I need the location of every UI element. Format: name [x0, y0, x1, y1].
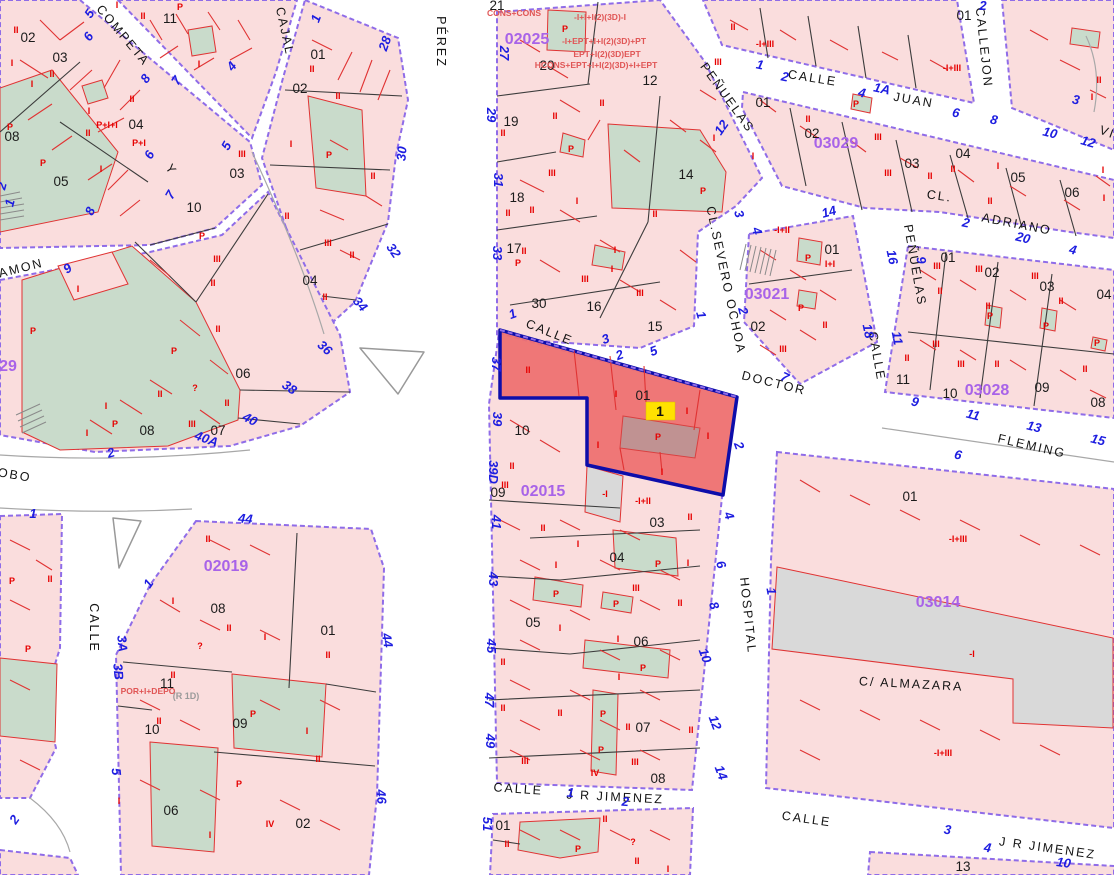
floor-count-label: II	[688, 725, 693, 735]
street-name-label: CALLE	[781, 809, 832, 830]
floor-count-label: II	[13, 25, 18, 35]
floor-count-label: III	[548, 168, 556, 178]
floor-count-label: I	[116, 0, 119, 10]
floor-count-label: III	[1031, 271, 1039, 281]
parcel-marker-label: 1	[656, 403, 664, 419]
house-number-label: 3B	[110, 663, 126, 681]
floor-count-label: I	[752, 151, 755, 161]
floor-count-label: II	[210, 278, 215, 288]
parcel-number-label: 06	[633, 634, 648, 649]
floor-count-label: P	[805, 253, 811, 263]
house-number-label: 30	[393, 145, 409, 161]
floor-count-label: ?	[630, 837, 636, 847]
floor-count-label: I	[77, 284, 80, 294]
floor-count-label: II	[1096, 75, 1101, 85]
floor-count-label: -I+III	[934, 748, 952, 758]
floor-count-label: III	[501, 480, 509, 490]
floor-count-label: II	[140, 11, 145, 21]
parcel-number-label: 06	[1064, 185, 1079, 200]
house-number-label: 33	[490, 246, 505, 261]
floor-count-label: III	[884, 168, 892, 178]
house-number-label: 1	[566, 785, 575, 801]
parcel-number-label: 16	[586, 299, 601, 314]
floor-count-label: P	[553, 589, 559, 599]
floor-count-label: III	[581, 274, 589, 284]
floor-count-label: III	[521, 756, 529, 766]
floor-count-label: P	[640, 663, 646, 673]
parcel-number-label: 12	[642, 73, 657, 88]
construction-detail-label: HCONS+EPT+I+I(2)(3D)+I+EPT	[535, 60, 658, 70]
floor-count-label: -I+II	[635, 496, 651, 506]
block-code-label: 02019	[204, 558, 249, 575]
parcel-number-label: 09	[232, 716, 247, 731]
floor-count-label: III	[975, 264, 983, 274]
floor-count-label: III	[213, 254, 221, 264]
floor-count-label: II	[309, 64, 314, 74]
floor-count-label: I	[576, 196, 579, 206]
floor-count-label: III	[714, 57, 722, 67]
floor-count-label: II	[687, 512, 692, 522]
block-code-label: 02015	[521, 483, 566, 500]
parcel-number-label: 02	[292, 81, 307, 96]
floor-count-label: I	[559, 623, 562, 633]
floor-count-label: II	[602, 814, 607, 824]
parcel-number-label: 01	[320, 623, 335, 638]
floor-count-label: P	[575, 844, 581, 854]
house-number-label: 10	[1055, 854, 1072, 871]
city-block-top-strip[interactable]	[703, 0, 974, 103]
floor-count-label: II	[370, 171, 375, 181]
parcel-number-label: 03	[649, 515, 664, 530]
floor-count-label: II	[224, 398, 229, 408]
floor-count-label: II	[625, 722, 630, 732]
house-number-label: 49	[483, 733, 498, 749]
floor-count-label: P	[798, 303, 804, 313]
house-number-label: 3	[731, 208, 748, 220]
floor-count-label: II	[677, 598, 682, 608]
house-number-label: 10	[1041, 124, 1059, 142]
parcel-number-label: 09	[1034, 380, 1049, 395]
floor-count-label: II	[284, 211, 289, 221]
house-number-label: 44	[237, 510, 254, 526]
floor-count-label: I	[577, 539, 580, 549]
construction-detail-label: CONS+CONS	[487, 8, 541, 18]
parcel-number-label: 01	[902, 489, 917, 504]
floor-count-label: I	[100, 164, 103, 174]
floor-count-label: I	[198, 59, 201, 69]
floor-count-label: P	[700, 186, 706, 196]
floor-count-label: II	[322, 292, 327, 302]
floor-count-label: II	[529, 205, 534, 215]
parcel-number-label: 05	[1010, 170, 1025, 185]
floor-count-label: II	[521, 246, 526, 256]
floor-count-label: I	[1103, 193, 1106, 203]
block-code-label: 03021	[745, 286, 790, 303]
floor-count-label: II	[325, 650, 330, 660]
house-number-label: 5	[647, 342, 660, 359]
floor-count-label: II	[315, 754, 320, 764]
floor-count-label: P	[112, 419, 118, 429]
parcel-number-label: 06	[163, 803, 178, 818]
floor-count-label: III	[779, 344, 787, 354]
parcel-number-label: 15	[647, 319, 662, 334]
parcel-number-label: 01	[824, 242, 839, 257]
floor-count-label: III	[631, 757, 639, 767]
floor-count-label: P	[9, 576, 15, 586]
floor-count-label: II	[509, 461, 514, 471]
street-name-label: CALLE	[493, 780, 543, 797]
floor-count-label: II	[500, 128, 505, 138]
floor-count-label: P	[199, 231, 205, 241]
parcel-number-label: 06	[235, 366, 250, 381]
parcel-number-label: 03	[1039, 279, 1054, 294]
floor-count-label: P+I	[132, 138, 146, 148]
floor-count-label: II	[215, 324, 220, 334]
floor-count-label: II	[730, 22, 735, 32]
house-number-label: 2	[620, 794, 630, 810]
street-name-label: CL.SEVERO OCHOA	[703, 205, 748, 355]
floor-count-label: I	[290, 139, 293, 149]
parcel-number-label: 18	[509, 190, 524, 205]
floor-count-label: II	[652, 209, 657, 219]
parcel-number-label: 01	[495, 818, 510, 833]
floor-count-label: -I+III	[943, 63, 961, 73]
floor-count-label: P	[326, 150, 332, 160]
floor-count-label: II	[634, 856, 639, 866]
parcel-number-label: 10	[514, 423, 529, 438]
parcel-number-label: 03	[229, 166, 244, 181]
block-code-label: 03014	[916, 594, 961, 611]
house-number-label: 4	[721, 509, 738, 523]
house-number-label: 27	[497, 45, 512, 61]
floor-count-label: I	[31, 79, 34, 89]
cadastral-map-viewport: 1 PÉREZCOMPETACAJALYAMONOBOCALLECALLEDOC…	[0, 0, 1114, 875]
house-number-label: 29	[484, 107, 499, 123]
floor-count-label: II	[540, 523, 545, 533]
parcel-number-label: 02	[750, 319, 765, 334]
floor-count-label: III	[932, 339, 940, 349]
floor-count-label: II	[170, 670, 175, 680]
parcel-number-label: 17	[506, 241, 521, 256]
house-number-label: 4	[1067, 241, 1079, 258]
block-code-label: 03028	[965, 382, 1010, 399]
floor-count-label: I	[105, 401, 108, 411]
parcel-number-label: 02	[20, 30, 35, 45]
construction-detail-label: -I+EPT+I+I(2)(3D)+PT	[562, 36, 647, 46]
floor-count-label: II	[805, 114, 810, 124]
parcel-number-label: 03	[52, 50, 67, 65]
floor-count-label: I	[306, 726, 309, 736]
floor-count-label: II	[226, 623, 231, 633]
house-number-label: 37	[489, 357, 504, 372]
house-number-label: 39D	[486, 460, 501, 484]
parcel-number-label: 11	[163, 11, 177, 26]
house-number-label: 3A	[114, 635, 130, 653]
house-number-label: 1A	[872, 80, 891, 98]
floor-count-label: II	[927, 171, 932, 181]
floor-count-label: I	[209, 830, 212, 840]
floor-count-label: I	[118, 796, 121, 806]
floor-count-label: I	[687, 558, 690, 568]
house-number-label: 14	[712, 763, 731, 782]
parcel-number-label: 01	[635, 388, 650, 403]
house-number-label: 2	[960, 214, 972, 231]
house-number-label: 16	[884, 248, 902, 266]
floor-count-label: I	[88, 106, 91, 116]
floor-count-label: ?	[192, 383, 198, 393]
house-number-label: 20	[1013, 228, 1032, 246]
street-name-label: OBO	[0, 465, 33, 485]
floor-count-label: -I	[602, 489, 608, 499]
construction-detail-label: -I+I+I(2)(3D)-I	[574, 12, 626, 22]
house-number-label: 1	[29, 506, 36, 521]
floor-count-label: -I	[969, 649, 975, 659]
floor-count-label: III	[238, 149, 246, 159]
floor-count-label: P	[853, 99, 859, 109]
floor-count-label: II	[335, 91, 340, 101]
house-number-label: 46	[373, 788, 389, 805]
parcel-number-label: 19	[503, 114, 518, 129]
parcel-number-label: 02	[295, 816, 310, 831]
floor-count-label: I	[614, 245, 617, 255]
floor-count-label: II	[500, 657, 505, 667]
floor-count-label: P	[7, 122, 13, 132]
street-name-label: FLEMING	[996, 431, 1067, 460]
street-name-label: HOSPITAL	[737, 577, 759, 655]
traffic-island	[360, 348, 424, 394]
street-name-label: J R JIMENEZ	[998, 834, 1097, 861]
floor-count-label: II	[157, 389, 162, 399]
house-number-label: 45	[484, 638, 499, 654]
house-number-label: 44	[379, 631, 397, 650]
floor-count-label: II	[1082, 364, 1087, 374]
floor-count-label: II	[85, 128, 90, 138]
house-number-label: 2	[978, 0, 987, 13]
floor-count-label: II	[1058, 296, 1063, 306]
parcel-number-label: 08	[139, 423, 154, 438]
house-number-label: 6	[951, 105, 962, 121]
house-number-label: 8	[989, 112, 1000, 128]
parcel-number-label: 01	[310, 47, 325, 62]
reference-label: (R 1D)	[173, 691, 200, 701]
block-code-label: 03029	[814, 135, 859, 152]
construction-detail-label: EPT+I(2)(3D)EPT	[573, 49, 641, 59]
floor-count-label: -I+III	[756, 39, 774, 49]
cadastral-map[interactable]: 1 PÉREZCOMPETACAJALYAMONOBOCALLECALLEDOC…	[0, 0, 1114, 875]
city-block-corner-n[interactable]	[0, 850, 78, 875]
floor-count-label: P	[598, 745, 604, 755]
construction-detail-label: POR+I+DEPO	[121, 686, 176, 696]
floor-count-label: II	[904, 353, 909, 363]
floor-count-label: I	[1102, 165, 1105, 175]
floor-count-label: II	[822, 320, 827, 330]
floor-count-label: II	[129, 94, 134, 104]
street-name-label: CALLEJON	[973, 7, 995, 89]
house-number-label: 39	[490, 412, 505, 427]
floor-count-label: I	[707, 431, 710, 441]
floor-count-label: II	[985, 301, 990, 311]
floor-count-label: I	[1091, 92, 1094, 102]
floor-count-label: P	[1043, 321, 1049, 331]
floor-count-label: P	[1094, 338, 1100, 348]
floor-count-label: I	[172, 596, 175, 606]
floor-count-label: P	[25, 644, 31, 654]
floor-count-label: I	[713, 133, 716, 143]
floor-count-label: P	[600, 709, 606, 719]
floor-count-label: P	[40, 158, 46, 168]
house-number-label: 15	[1089, 431, 1107, 449]
house-number-label: 11	[965, 406, 982, 424]
street-name-label: CALLE	[87, 603, 101, 653]
floor-count-label: III	[933, 261, 941, 271]
floor-count-label: P	[568, 144, 574, 154]
floor-count-label: P+I+I	[96, 120, 118, 130]
floor-count-label: -I+III	[949, 534, 967, 544]
house-number-label: 4	[982, 839, 993, 855]
floor-count-label: P	[30, 326, 36, 336]
parcel-number-label: 04	[955, 146, 971, 161]
parcel-number-label: 01	[956, 8, 971, 23]
floor-count-label: -I+II	[774, 225, 790, 235]
floor-count-label: II	[47, 574, 52, 584]
floor-count-label: II	[505, 208, 510, 218]
parcel-number-label: 02	[804, 126, 819, 141]
floor-count-label: II	[205, 534, 210, 544]
parcel-number-label: 08	[1090, 395, 1105, 410]
floor-count-label: II	[49, 69, 54, 79]
parcel-number-label: 14	[678, 167, 694, 182]
floor-count-label: III	[188, 419, 196, 429]
house-number-label: 2	[6, 812, 23, 828]
house-number-label: 2	[731, 439, 748, 453]
floor-count-label: II	[950, 164, 955, 174]
parcel-number-label: 01	[755, 95, 770, 110]
block-code-label: 29	[0, 358, 17, 375]
parcel-number-label: 04	[128, 117, 144, 132]
floor-count-label: I	[667, 864, 670, 874]
street-name-label: PÉREZ	[434, 16, 449, 68]
floor-count-label: II	[994, 359, 999, 369]
floor-count-label: II	[987, 196, 992, 206]
floor-count-label: P	[171, 346, 177, 356]
floor-count-label: I	[997, 161, 1000, 171]
floor-count-label: P	[987, 311, 993, 321]
floor-count-label: III	[957, 359, 965, 369]
floor-count-label: P	[515, 258, 521, 268]
parcel-number-label: 02	[984, 265, 999, 280]
house-number-label: 47	[482, 692, 497, 708]
parcel-number-label: 11	[896, 372, 910, 387]
parcel-number-label: 10	[942, 386, 957, 401]
house-number-label: 13	[1025, 418, 1043, 436]
house-number-label: 32	[383, 240, 404, 261]
floor-count-label: I	[615, 389, 618, 399]
parcel-number-label: 03	[904, 156, 919, 171]
parcel-number-label: 07	[635, 720, 650, 735]
floor-count-label: P	[562, 24, 568, 34]
floor-count-label: II	[525, 365, 530, 375]
floor-count-label: P	[613, 599, 619, 609]
floor-count-label: II	[937, 286, 942, 296]
floor-count-label: P	[177, 2, 183, 12]
floor-count-label: I	[264, 632, 267, 642]
house-number-label: 31	[491, 173, 506, 187]
parcel-number-label: 04	[609, 550, 625, 565]
parcel-number-label: 10	[186, 200, 201, 215]
floor-count-label: II	[557, 708, 562, 718]
floor-count-label: I	[686, 406, 689, 416]
parcel-number-label: 05	[53, 174, 68, 189]
house-number-label: 12	[1079, 132, 1098, 151]
house-number-label: 3	[943, 822, 953, 838]
floor-count-label: I	[611, 264, 614, 274]
house-number-label: 1	[755, 57, 765, 73]
parcel-number-label: 13	[955, 859, 970, 874]
floor-count-label: II	[599, 98, 604, 108]
floor-count-label: P	[655, 559, 661, 569]
parcel-number-label: 01	[940, 250, 955, 265]
floor-count-label: I	[618, 672, 621, 682]
floor-count-label: IV	[266, 819, 275, 829]
floor-count-label: P	[655, 432, 661, 442]
parcel-number-label: 04	[302, 273, 318, 288]
floor-count-label: I+I	[825, 259, 835, 269]
parcel-number-label: 04	[1096, 287, 1112, 302]
floor-count-label: II	[156, 716, 161, 726]
floor-count-label: I	[11, 58, 14, 68]
street-name-label: CALLE	[866, 331, 888, 382]
parcel-number-label: 30	[531, 296, 546, 311]
house-number-label: 12	[706, 713, 725, 732]
city-block-west-m[interactable]	[0, 514, 62, 798]
floor-count-label: I	[86, 428, 89, 438]
floor-count-label: I	[661, 467, 664, 477]
floor-count-label: P	[236, 779, 242, 789]
floor-count-label: III	[874, 132, 882, 142]
floor-count-label: II	[500, 703, 505, 713]
floor-count-label: II	[504, 839, 509, 849]
floor-count-label: I	[597, 440, 600, 450]
parcel-number-label: 08	[650, 771, 665, 786]
house-number-label: 51	[480, 817, 495, 831]
floor-count-label: III	[324, 238, 332, 248]
floor-count-label: IV	[591, 768, 600, 778]
floor-count-label: III	[636, 288, 644, 298]
floor-count-label: II	[552, 111, 557, 121]
house-number-label: 41	[489, 514, 504, 529]
parcel-number-label: 08	[210, 601, 225, 616]
house-number-label: 9	[910, 393, 921, 409]
floor-count-label: I	[555, 560, 558, 570]
floor-count-label: II	[349, 250, 354, 260]
house-number-label: 6	[953, 446, 964, 462]
parcel-number-label: 05	[525, 615, 540, 630]
floor-count-label: III	[632, 583, 640, 593]
floor-count-label: P	[250, 709, 256, 719]
house-number-label: 43	[486, 571, 501, 587]
traffic-island	[113, 518, 141, 568]
parcel-marker[interactable]: 1	[646, 402, 675, 420]
floor-count-label: I	[617, 634, 620, 644]
street-name-label: J R JIMENEZ	[566, 787, 664, 806]
floor-count-label: ?	[197, 641, 203, 651]
